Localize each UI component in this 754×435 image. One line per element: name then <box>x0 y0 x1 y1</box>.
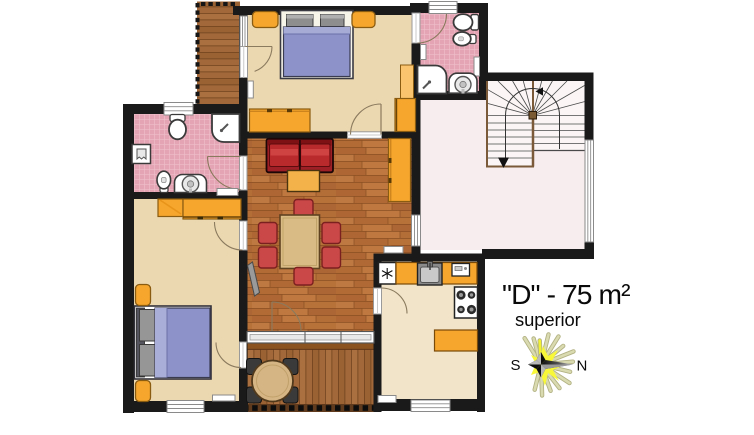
svg-text:S: S <box>511 357 521 374</box>
svg-text:"D" - 75 m²: "D" - 75 m² <box>502 278 630 310</box>
svg-text:superior: superior <box>515 309 581 330</box>
svg-text:N: N <box>577 358 588 375</box>
